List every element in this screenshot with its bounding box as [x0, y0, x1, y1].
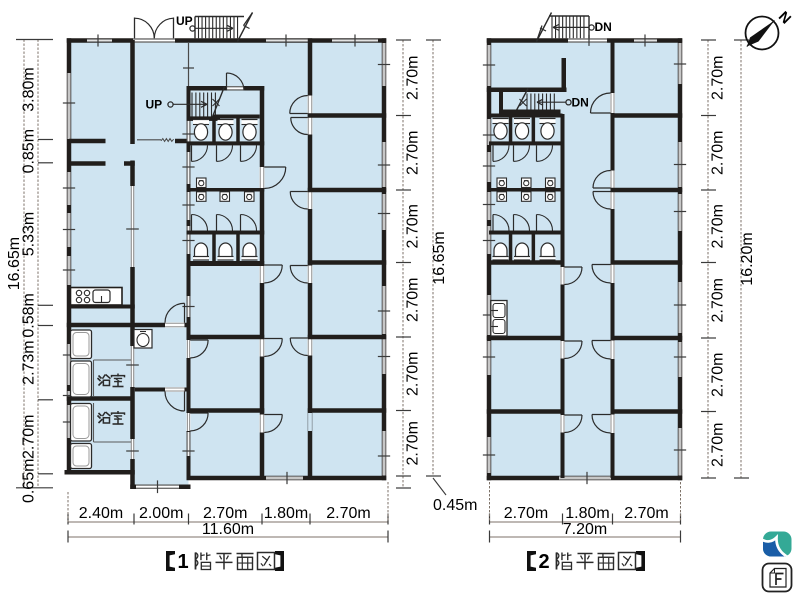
svg-text:2.70m: 2.70m	[710, 423, 727, 467]
svg-text:1: 1	[177, 551, 188, 573]
svg-text:0.45m: 0.45m	[433, 497, 477, 514]
svg-text:7.20m: 7.20m	[563, 521, 607, 538]
svg-text:3.80m: 3.80m	[21, 67, 38, 111]
svg-text:2.70m: 2.70m	[710, 131, 727, 175]
svg-text:UP: UP	[176, 14, 193, 28]
svg-text:2.70m: 2.70m	[405, 131, 422, 175]
svg-text:2.70m: 2.70m	[405, 421, 422, 465]
svg-text:0.65m: 0.65m	[21, 459, 38, 503]
svg-text:2.70m: 2.70m	[326, 505, 370, 522]
svg-text:5.33m: 5.33m	[21, 212, 38, 256]
svg-text:2.70m: 2.70m	[21, 415, 38, 459]
svg-text:DN: DN	[572, 96, 589, 110]
svg-text:2.70m: 2.70m	[710, 204, 727, 248]
svg-text:16.65m: 16.65m	[6, 237, 23, 290]
svg-text:2.70m: 2.70m	[405, 278, 422, 322]
svg-text:2.70m: 2.70m	[624, 505, 668, 522]
svg-text:1.80m: 1.80m	[264, 505, 308, 522]
svg-text:16.20m: 16.20m	[739, 232, 756, 285]
svg-text:1.80m: 1.80m	[565, 505, 609, 522]
svg-text:2.70m: 2.70m	[405, 56, 422, 100]
svg-text:2.70m: 2.70m	[203, 505, 247, 522]
svg-text:2.73m: 2.73m	[21, 340, 38, 384]
svg-text:2.70m: 2.70m	[710, 353, 727, 397]
svg-text:DN: DN	[595, 20, 612, 34]
svg-text:2.70m: 2.70m	[710, 278, 727, 322]
svg-text:2.70m: 2.70m	[405, 204, 422, 248]
svg-text:2.40m: 2.40m	[79, 505, 123, 522]
svg-text:2: 2	[538, 551, 549, 573]
svg-text:0.85m: 0.85m	[21, 129, 38, 173]
svg-text:UP: UP	[146, 98, 163, 112]
svg-text:2.00m: 2.00m	[139, 505, 183, 522]
svg-text:2.70m: 2.70m	[405, 352, 422, 396]
svg-text:2.70m: 2.70m	[710, 56, 727, 100]
svg-text:16.65m: 16.65m	[431, 231, 448, 284]
svg-text:11.60m: 11.60m	[202, 521, 254, 538]
svg-text:2.70m: 2.70m	[504, 505, 548, 522]
svg-text:0.58m: 0.58m	[21, 293, 38, 337]
